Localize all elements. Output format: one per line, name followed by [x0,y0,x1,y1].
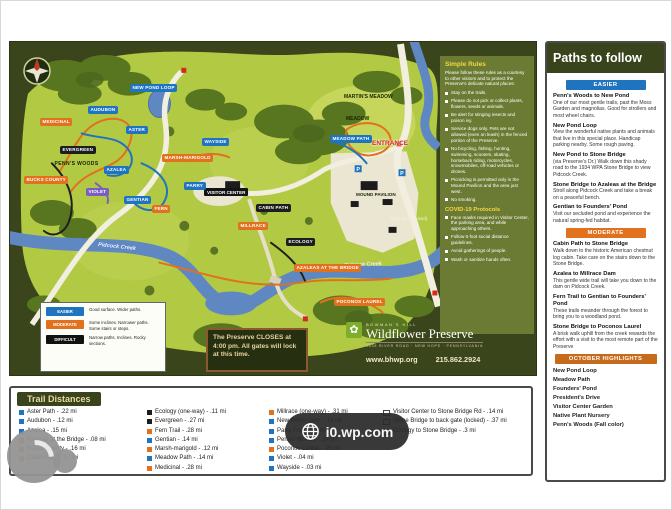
trail-distances-title: Trail Distances [17,392,101,406]
trail-distance-item: Ecology (one-way) - .11 mi [147,408,263,417]
rule-item: Service dogs only. Pets are not allowed … [445,126,529,143]
trail-name: Stone Bridge to Azaleas at the Bridge [553,182,658,189]
back-gate-label: Back gate (locked) [390,216,427,221]
covid-rules-list: Face masks required in Visitor Center, t… [445,215,529,263]
trail-label: AZALEA [104,166,129,174]
preserve-logo: ✿ BOWMAN'S HILL Wildflower Preserve 1635… [346,322,536,364]
trail-section-item: Azalea to Millrace Dam This gentle wide … [553,271,658,291]
trail-color-swatch [269,419,274,424]
rule-item: Face masks required in Visitor Center, t… [445,215,529,232]
trail-label: AZALEAS AT THE BRIDGE [294,264,361,272]
rule-item: Wash or sanitize hands often. [445,257,529,263]
trail-description: One of our most gentle trails, past the … [553,100,658,120]
gray-blob-overlay [53,449,77,473]
trail-color-swatch [147,410,152,415]
trail-description: Stroll along Pidcock Creek and take a br… [553,188,658,201]
trail-color-swatch [19,410,24,415]
trail-label: POCONOS LAUREL [334,298,385,306]
trail-description: These trails meander through the forest … [553,308,658,321]
trail-color-swatch [269,438,274,443]
trail-color-swatch [147,429,152,434]
rule-text: Picnicking is permitted only in the Moun… [451,177,529,194]
trail-distance-text: Wayside - .03 mi [277,464,321,473]
trail-description: (via Preserve's Dr.) Walk down this shad… [553,159,658,179]
trail-description: A brisk walk uphill from the creek rewar… [553,331,658,351]
bullet-square-icon [445,148,448,151]
moderate-description: Some inclines. Narrower paths. Some stai… [89,320,160,331]
trail-color-swatch [269,466,274,471]
trail-label: CABIN PATH [256,204,291,212]
trail-label: FERN [152,205,170,213]
phone-number: 215.862.2924 [436,355,481,364]
rule-text: Stay on the trails. [451,90,487,96]
wordpress-watermark: i0.wp.com [285,413,409,450]
org-tagline: 1635 RIVER ROAD · NEW HOPE · PENNSYLVANI… [366,342,483,349]
trail-name: New Pond to Stone Bridge [553,152,658,159]
trail-distance-text: Meadow Path - .14 mi [155,454,213,463]
trail-label: VIOLET [86,188,109,196]
rule-text: Be alert for stinging insects and poison… [451,112,529,123]
legend-row: EASIER Good surface. Wider paths. [46,307,160,316]
highlight-item: President's Drive [553,394,658,403]
bullet-square-icon [445,114,448,117]
trail-distance-item: Evergreen - .27 mi [147,417,263,426]
highlight-item: Native Plant Nursery [553,412,658,421]
flower-icon: ✿ [346,322,362,338]
rule-text: Face masks required in Visitor Center, t… [451,215,529,232]
trail-color-swatch [147,456,152,461]
trail-label: ASTER [126,126,148,134]
october-highlights-list: New Pond LoopMeadow PathFounders' PondPr… [553,367,658,430]
svg-text:P: P [356,167,360,173]
trail-name: Fern Trail to Gentian to Founders' Pond [553,294,658,308]
trail-distance-item: Visitor Center to Stone Bridge Rd - .14 … [383,408,541,417]
highlight-item: Visitor Center Garden [553,403,658,412]
highlight-item: Penn's Woods (Fall color) [553,421,658,430]
org-name: Wildflower Preserve [366,327,483,340]
rule-text: Avoid gatherings of people. [451,248,507,254]
trail-section-item: New Pond to Stone Bridge (via Preserve's… [553,152,658,179]
bullet-square-icon [445,198,448,201]
watermark-text: i0.wp.com [326,424,394,440]
rules-panel: Simple Rules Please follow these rules a… [440,56,534,334]
trail-label: MEDICINAL [40,118,72,126]
trail-distance-text: Violet - .04 mi [277,454,314,463]
covid-protocols-title: COVID-19 Protocols [445,207,529,213]
trail-color-swatch [147,466,152,471]
bullet-square-icon [445,236,448,239]
easier-badge: EASIER [46,307,84,316]
highlight-item: New Pond Loop [553,367,658,376]
bullet-square-icon [445,128,448,131]
trail-description: This gentle wide trail will take you dow… [553,278,658,291]
difficult-badge: DIFFICULT [46,335,84,344]
easier-section-badge: EASIER [566,80,646,90]
trail-description: Walk down to the historic American chest… [553,248,658,268]
bullet-square-icon [445,216,448,219]
distances-column: Ecology (one-way) - .11 mi Evergreen - .… [147,408,263,473]
rule-item: Follow 6-foot social distance guidelines… [445,234,529,245]
trail-distance-item: Violet - .04 mi [269,454,377,463]
rule-item: Stay on the trails. [445,90,529,96]
trail-distance-item: Aster Path - .22 mi [19,408,141,417]
trail-section-item: Cabin Path to Stone Bridge Walk down to … [553,241,658,268]
trail-description: View the wonderful native plants and ani… [553,129,658,149]
entrance-label: ENTRANCE [372,140,408,147]
trail-distance-item: Meadow Path - .14 mi [147,454,263,463]
trail-distance-text: Evergreen - .27 mi [155,417,204,426]
compass-rose-icon [22,56,52,86]
trail-label: NEW POND LOOP [130,84,177,92]
mound-pavilion-label: MOUND PAVILION [356,192,396,197]
trail-name: Cabin Path to Stone Bridge [553,241,658,248]
trail-distance-text: Visitor Center to Stone Bridge Rd - .14 … [393,408,503,417]
trail-distance-item: Gentian - .14 mi [147,436,263,445]
trail-label: BUCKS COUNTY [24,176,68,184]
trail-distances-panel: Trail Distances Aster Path - .22 mi Audu… [9,386,533,476]
rules-intro: Please follow these rules as a courtesy … [445,70,529,87]
trail-distance-text: Stone Bridge to back gate (locked) - .37… [393,417,507,426]
trail-label: AUDUBON [88,106,118,114]
bullet-square-icon [445,258,448,261]
difficulty-legend: EASIER Good surface. Wider paths. MODERA… [40,302,166,372]
trail-distance-item: Marsh-marigold - .12 mi [147,445,263,454]
trail-color-swatch [269,447,274,452]
trail-label: PENN'S WOODS [52,160,101,168]
trail-label: MILLRACE [238,222,268,230]
rule-text: Follow 6-foot social distance guidelines… [451,234,529,245]
trail-name: Azalea to Millrace Dam [553,271,658,278]
closing-notice: The Preserve CLOSES at 4:00 pm. All gate… [206,328,308,372]
rule-item: No bicycling, fishing, hunting, swimming… [445,146,529,175]
trail-section-item: New Pond Loop View the wonderful native … [553,123,658,150]
trail-section-item: Stone Bridge to Azaleas at the Bridge St… [553,182,658,202]
trail-label: WAYSIDE [202,138,229,146]
rule-text: No bicycling, fishing, hunting, swimming… [451,146,529,175]
meadow-label: MEADOW [346,116,369,122]
trail-distance-text: Marsh-marigold - .12 mi [155,445,218,454]
trail-color-swatch [269,429,274,434]
rule-item: No smoking. [445,197,529,203]
trail-name: Penn's Woods to New Pond [553,93,658,100]
trail-label: EVERGREEN [60,146,96,154]
trail-label: PARRY [184,182,206,190]
trail-label: MARSH-MARIGOLD [162,154,213,162]
scanned-trail-map-page: P P MARTIN'S MEADOW MEADOW ENTRANCE VISI… [0,0,672,510]
rule-text: Wash or sanitize hands often. [451,257,511,263]
rule-text: Service dogs only. Pets are not allowed … [451,126,529,143]
trail-color-swatch [269,456,274,461]
moderate-section-badge: MODERATE [566,228,646,238]
trail-distance-item: Wayside - .03 mi [269,464,377,473]
bullet-square-icon [445,92,448,95]
trail-color-swatch [147,419,152,424]
bullet-square-icon [445,250,448,253]
rule-item: Please do not pick or collect plants, fl… [445,98,529,109]
trail-section-item: Stone Bridge to Poconos Laurel A brisk w… [553,324,658,351]
trail-color-swatch [147,447,152,452]
trail-distance-item: Medicinal - .28 mi [147,464,263,473]
trail-distance-text: Audubon - .12 mi [27,417,73,426]
trail-section-item: Fern Trail to Gentian to Founders' Pond … [553,294,658,321]
difficult-description: Narrow paths. Inclines. Rocky sections. [89,335,160,346]
trail-distance-text: Gentian - .14 mi [155,436,198,445]
visitor-center-label: VISITOR CENTER [204,188,248,196]
rule-text: No smoking. [451,197,477,203]
moderate-badge: MODERATE [46,320,84,329]
paths-to-follow-sidebar: Paths to follow EASIER Penn's Woods to N… [545,41,666,482]
october-highlights-badge: OCTOBER HIGHLIGHTS [555,354,657,364]
trail-distance-text: Ecology (one-way) - .11 mi [155,408,226,417]
rule-item: Picnicking is permitted only in the Moun… [445,177,529,194]
trail-color-swatch [19,419,24,424]
legend-row: DIFFICULT Narrow paths. Inclines. Rocky … [46,335,160,346]
trail-name: New Pond Loop [553,123,658,130]
trail-label: MEADOW PATH [330,135,372,143]
preserve-map: P P MARTIN'S MEADOW MEADOW ENTRANCE VISI… [9,41,537,376]
rule-item: Be alert for stinging insects and poison… [445,112,529,123]
trail-description: Visit our secluded pond and experience t… [553,211,658,224]
rules-list: Stay on the trails. Please do not pick o… [445,90,529,202]
trail-distance-text: Fern Trail - .28 mi [155,427,202,436]
legend-row: MODERATE Some inclines. Narrower paths. … [46,320,160,331]
trail-color-swatch [147,438,152,443]
martins-meadow-label: MARTIN'S MEADOW [344,94,393,100]
highlight-item: Founders' Pond [553,385,658,394]
trail-distance-item: Audubon - .12 mi [19,417,141,426]
trail-section-item: Gentian to Founders' Pond Visit our secl… [553,204,658,224]
trail-section-item: Penn's Woods to New Pond One of our most… [553,93,658,120]
trail-distance-item: Fern Trail - .28 mi [147,427,263,436]
trail-distance-text: Aster Path - .22 mi [27,408,77,417]
bullet-square-icon [445,100,448,103]
rule-item: Avoid gatherings of people. [445,248,529,254]
rule-text: Please do not pick or collect plants, fl… [451,98,529,109]
svg-text:P: P [400,171,404,177]
trail-name: Gentian to Founders' Pond [553,204,658,211]
moderate-trail-list: Cabin Path to Stone Bridge Walk down to … [553,241,658,350]
trail-color-swatch [269,410,274,415]
easier-description: Good surface. Wider paths. [89,307,141,313]
highlight-item: Meadow Path [553,376,658,385]
trail-distance-text: Medicinal - .28 mi [155,464,202,473]
sidebar-title: Paths to follow [547,43,664,73]
trail-name: Stone Bridge to Poconos Laurel [553,324,658,331]
bullet-square-icon [445,179,448,182]
globe-icon [301,422,320,441]
website: www.bhwp.org [366,355,418,364]
distances-column: Visitor Center to Stone Bridge Rd - .14 … [383,408,541,473]
easier-trail-list: Penn's Woods to New Pond One of our most… [553,93,658,224]
trail-label: GENTIAN [124,196,151,204]
rules-title: Simple Rules [445,61,529,68]
trail-label: ECOLOGY [286,238,315,246]
